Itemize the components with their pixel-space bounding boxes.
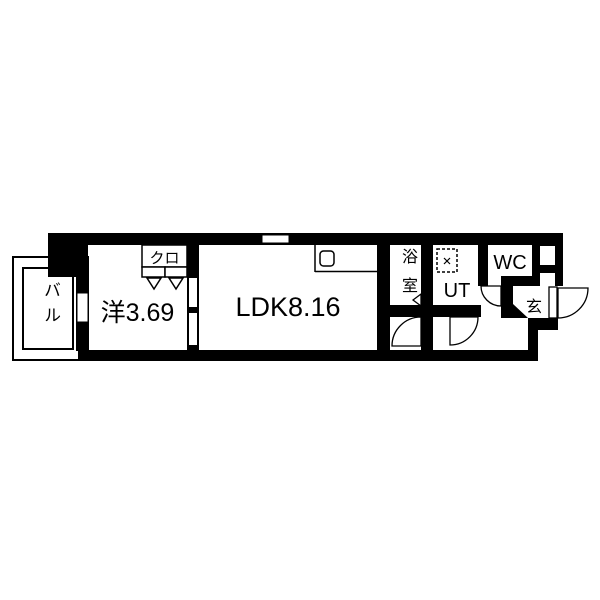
entrance-door-leaf: [549, 287, 557, 318]
toilet-label: WC: [488, 252, 532, 275]
wall-bathroom-utility: [421, 245, 433, 351]
kitchen-sink-icon: [320, 251, 334, 266]
closet-door-right: [165, 267, 187, 277]
top-wall: [48, 233, 563, 245]
balcony-label: バル: [38, 281, 63, 331]
bottom-wall: [78, 350, 538, 361]
entrance-door-arc: [558, 288, 588, 318]
folding-door-arrow-left-icon: [147, 278, 161, 289]
bathroom-door-arc: [392, 317, 421, 346]
utility-door-arc: [450, 317, 478, 345]
left-corner-wall-block: [48, 233, 88, 277]
folding-door-arrow-right-icon: [169, 278, 183, 289]
balcony-window: [77, 293, 88, 322]
bathroom-label: 浴室: [395, 248, 419, 306]
floor-plan: バル 洋3.69 クロ LDK8.16 浴室 UT WC 玄: [0, 0, 600, 600]
pipe-space-notch-bottom: [540, 273, 555, 287]
pipe-space-notch-top: [540, 246, 555, 265]
entrance-label: 玄: [526, 293, 542, 317]
closet-door-left: [142, 267, 165, 277]
utility-bottom-wall: [433, 305, 481, 317]
wall-ldk-bathroom: [377, 245, 390, 351]
sliding-door-divider: [189, 307, 197, 313]
utility-label: UT: [433, 280, 481, 303]
toilet-door-arc: [481, 286, 501, 306]
closet-label: クロ: [142, 247, 187, 268]
ldk-label: LDK8.16: [199, 292, 377, 323]
entry-step-wall-horizontal: [528, 318, 558, 330]
ldk-window: [262, 235, 289, 243]
western-room-label: 洋3.69: [88, 293, 187, 329]
